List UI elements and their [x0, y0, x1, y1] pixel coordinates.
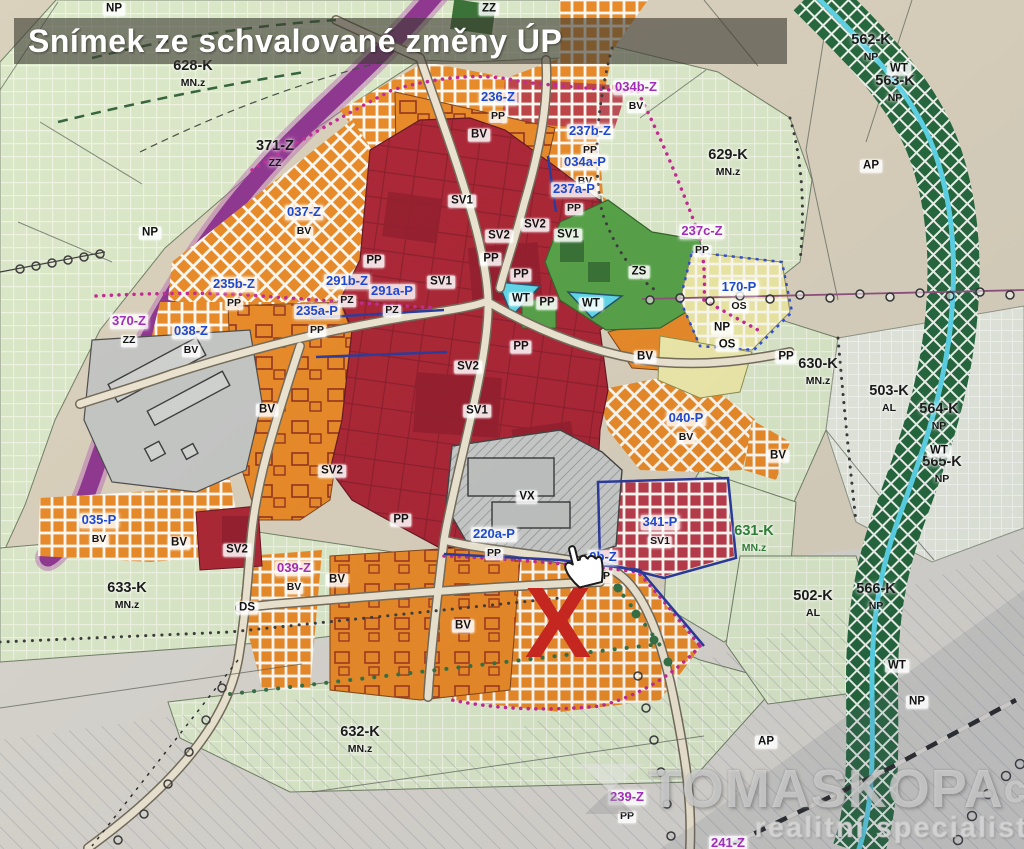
zone-label-ds: DS: [236, 602, 258, 615]
zone-label-039-z: 039-ZBV: [275, 559, 313, 595]
zone-label-502-k: 502-KAL: [791, 588, 835, 620]
zone-label-563-k: 563-KNP: [873, 73, 917, 105]
zone-label-562-k: 562-KNP: [849, 32, 893, 64]
zone-label-wt: WT: [509, 293, 533, 306]
zone-label-629-k: 629-KMN.z: [706, 147, 750, 179]
zone-label-236-z: 236-ZPP: [479, 88, 517, 124]
zone-label-np: NP: [103, 3, 125, 16]
zone-label-ap: AP: [755, 736, 777, 749]
zone-label-bv: BV: [634, 351, 656, 364]
zone-label-pp: PP: [390, 514, 411, 527]
zone-label-220a-p: 220a-PPP: [471, 525, 517, 561]
zone-label-237a-p: 237a-PPP: [551, 180, 597, 216]
zone-label-bv: BV: [468, 129, 490, 142]
zone-label-sv2: SV2: [485, 230, 513, 243]
zone-label-631-k: 631-KMN.z: [732, 523, 776, 555]
zone-label-sv1: SV1: [554, 229, 582, 242]
zone-label-pp: PP: [510, 341, 531, 354]
zone-label-np: NP: [906, 696, 928, 709]
tomaskopa-logo-icon: [577, 760, 643, 818]
zone-label-034b-z: 034b-ZBV: [613, 78, 659, 114]
zone-label-341-p: 341-PSV1: [641, 513, 680, 549]
zone-label-pp: PP: [536, 297, 557, 310]
zone-label-037-z: 037-ZBV: [285, 203, 323, 239]
zone-label-bv: BV: [256, 404, 278, 417]
zone-label-vx: VX: [516, 491, 537, 504]
zone-label-235b-z: 235b-ZPP: [211, 275, 257, 311]
zone-label-np: NP: [711, 322, 733, 335]
zone-label-wt: WT: [885, 660, 909, 673]
zone-label-wt: WT: [887, 63, 911, 76]
watermark: TOMASKOPA cz realitní specialista: [577, 758, 1024, 845]
zone-label-291a-p: 291a-PPZ: [369, 282, 415, 318]
zone-label-bv: BV: [168, 537, 190, 550]
zone-label-sv1: SV1: [463, 405, 491, 418]
zone-label-pp: PP: [363, 255, 384, 268]
zone-label-503-k: 503-KAL: [867, 383, 911, 415]
title-text: Snímek ze schvalované změny ÚP: [28, 23, 562, 60]
zone-label-038-z: 038-ZBV: [172, 322, 210, 358]
zone-label-237c-z: 237c-ZPP: [679, 222, 724, 258]
zone-label-ap: AP: [860, 160, 882, 173]
zone-label-wt: WT: [927, 445, 951, 458]
zone-label-630-k: 630-KMN.z: [796, 356, 840, 388]
zone-label-pp: PP: [510, 269, 531, 282]
zone-label-wt: WT: [579, 298, 603, 311]
watermark-brand: TOMASKOPA: [649, 758, 1004, 820]
zone-label-170-p: 170-POS: [720, 278, 759, 314]
zone-label-566-k: 566-KNP: [854, 581, 898, 613]
zone-label-sv1: SV1: [448, 195, 476, 208]
zone-label-040-p: 040-PBV: [667, 409, 706, 445]
zone-label-zz: ZZ: [479, 3, 499, 16]
zone-label-235a-p: 235a-PPP: [294, 302, 340, 338]
watermark-suffix: cz: [1004, 767, 1024, 812]
zone-label-sv1: SV1: [427, 276, 455, 289]
zone-label-632-k: 632-KMN.z: [338, 724, 382, 756]
zone-label-370-z: 370-ZZZ: [110, 312, 148, 348]
zone-label-np: NP: [139, 227, 161, 240]
zone-label-633-k: 633-KMN.z: [105, 580, 149, 612]
zone-label-bv: BV: [767, 450, 789, 463]
zone-label-bv: BV: [326, 574, 348, 587]
zone-label-sv2: SV2: [454, 361, 482, 374]
zone-label-565-k: 565-KNP: [920, 454, 964, 486]
zone-label-zs: ZS: [629, 266, 650, 279]
zone-label-layer: 628-KMN.z629-KMN.z630-KMN.z503-KAL564-KN…: [0, 0, 1024, 849]
zone-label-371-z: 371-ZZZ: [254, 138, 296, 170]
screenshot-root: 628-KMN.z629-KMN.z630-KMN.z503-KAL564-KN…: [0, 0, 1024, 849]
title-banner: Snímek ze schvalované změny ÚP: [14, 18, 787, 64]
hand-cursor-icon: [558, 538, 608, 590]
zone-label-564-k: 564-KNP: [917, 401, 961, 433]
zone-label-sv2: SV2: [318, 465, 346, 478]
zone-label-035-p: 035-PBV: [80, 511, 119, 547]
zone-label-os: OS: [716, 339, 739, 352]
watermark-tagline: realitní specialista: [577, 812, 1024, 845]
zone-label-sv2: SV2: [521, 219, 549, 232]
zone-label-bv: BV: [452, 620, 474, 633]
zone-label-pp: PP: [480, 253, 501, 266]
zone-label-sv2: SV2: [223, 544, 251, 557]
zone-label-pp: PP: [775, 351, 796, 364]
